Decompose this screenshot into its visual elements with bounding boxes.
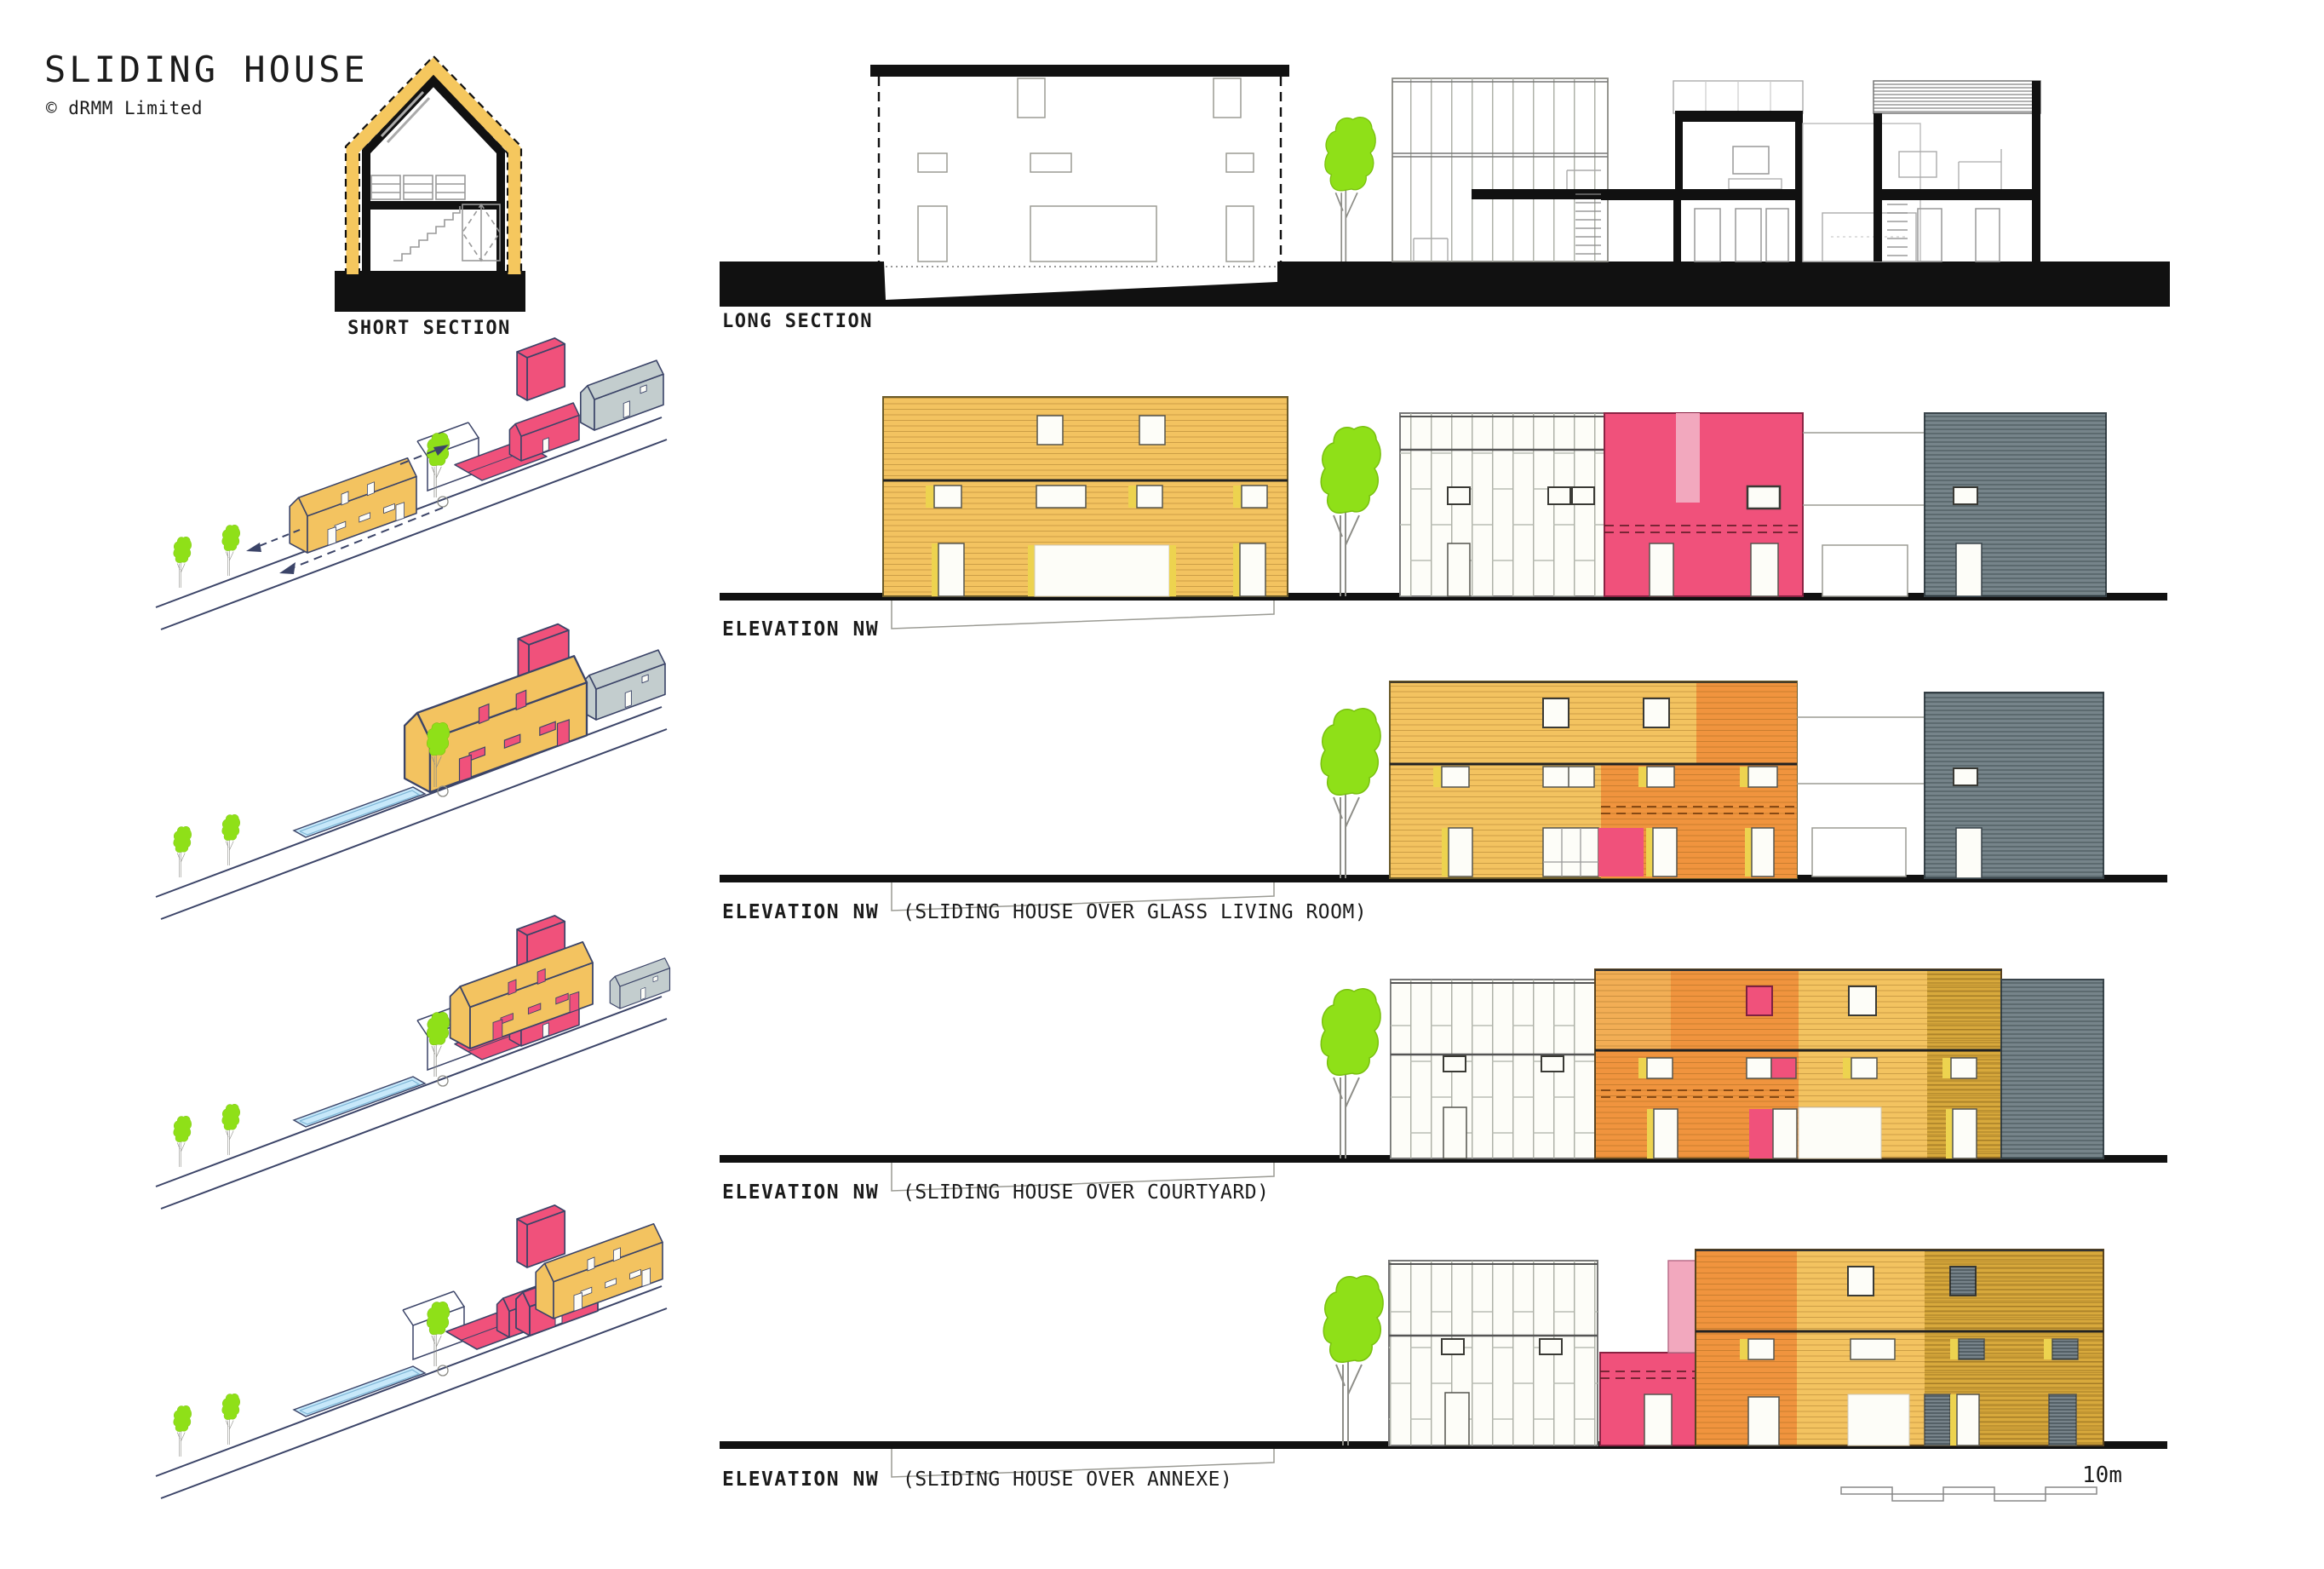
window [934,486,961,508]
window [1954,768,1977,785]
main-house-elevation [1604,413,1803,596]
door [1644,1394,1672,1445]
glass-living-room-elevation [1389,1261,1598,1445]
courtyard-walls [1797,717,1925,784]
door [1956,543,1982,596]
envelope-ghost-outline [879,77,1281,261]
window [1848,1267,1874,1296]
main-house-section [1601,81,1920,261]
elevation-4-label: ELEVATION NW [722,1468,879,1491]
annexe-section [1874,81,2040,261]
window [1548,487,1570,504]
window [1442,1339,1464,1354]
tree-icon [1321,989,1380,1158]
sliding-house-over-glass-room [1390,681,1797,878]
elevation-row-4: ELEVATION NW (SLIDING HOUSE OVER ANNEXE)… [720,1250,2167,1501]
door [1449,828,1472,876]
window [1036,486,1086,508]
sliding-house-over-courtyard [1595,969,2001,1158]
window [1747,486,1780,509]
tree-icon [1325,118,1375,261]
axon-view-1 [156,338,667,629]
window [1954,487,1977,504]
glass-living-room-elevation [1391,980,1595,1158]
axon-view-4 [156,1205,667,1498]
door [1654,1109,1678,1158]
window [1647,1058,1673,1078]
door [1653,828,1677,876]
pink-window [1747,986,1772,1015]
garage-opening [1035,545,1169,596]
window [1137,486,1162,508]
door [1953,1109,1977,1158]
window [1139,416,1165,445]
window [1572,487,1594,504]
elevation-row-1: ELEVATION NW [720,397,2167,641]
copyright-text: © dRMM Limited [46,98,203,118]
drawing-sheet: SLIDING HOUSE © dRMM Limited SHORT SECTI… [0,0,2324,1569]
elevation-3-label: ELEVATION NW [722,1181,879,1204]
window [1747,1058,1771,1078]
glass-living-room-elevation [1400,413,1604,596]
door [1240,543,1265,596]
elevation-row-3: ELEVATION NW (SLIDING HOUSE OVER COURTYA… [720,969,2167,1204]
title-block: SLIDING HOUSE © dRMM Limited [44,49,369,118]
pink-window [1771,1058,1796,1078]
window [1543,698,1569,727]
window [1748,1339,1774,1359]
window [1540,1339,1562,1354]
elevation-3-sublabel: (SLIDING HOUSE OVER COURTYARD) [903,1181,1269,1204]
sliding-house-over-annexe [1696,1250,2103,1445]
elevation-2-sublabel: (SLIDING HOUSE OVER GLASS LIVING ROOM) [903,901,1367,923]
ghost-openings [918,78,1254,261]
page-title: SLIDING HOUSE [44,49,369,90]
door [1751,543,1778,596]
annexe-elevation [1925,693,2103,878]
annexe-elevation [2001,980,2103,1158]
annexe-elevation [1925,413,2106,596]
below-ground-outline [892,601,1274,629]
tree-icon [1321,709,1380,878]
window [1448,487,1470,504]
scale-label: 10m [2082,1463,2122,1488]
axon-view-2 [156,624,667,919]
window [1849,986,1876,1015]
garage-opening [1848,1394,1909,1445]
pink-tower [1668,1261,1696,1353]
window [1644,698,1669,727]
elevation-1-label: ELEVATION NW [722,618,879,641]
tree-icon [1321,427,1380,596]
window [1242,486,1267,508]
garage-outline [1822,545,1908,596]
pink-door-panel [1749,1109,1773,1158]
door [1773,1109,1797,1158]
window [1037,416,1063,445]
courtyard-walls [1803,433,1925,596]
window [1951,1058,1977,1078]
door [938,543,964,596]
tree-icon [1323,1276,1383,1445]
garage-opening [1799,1107,1881,1158]
door [1752,828,1774,876]
window [1541,1056,1564,1072]
roof-bar [870,65,1289,77]
short-section-drawing: SHORT SECTION [335,56,525,339]
door [1443,1107,1466,1158]
elevation-4-sublabel: (SLIDING HOUSE OVER ANNEXE) [903,1468,1232,1491]
door [1956,828,1982,878]
window [1748,767,1777,787]
door [1650,543,1673,596]
pink-door-panel [1598,828,1644,876]
window [1442,767,1469,787]
door [1445,1393,1469,1445]
window [1851,1058,1877,1078]
ground-mass [335,271,525,312]
sliding-house-sheet: SLIDING HOUSE © dRMM Limited SHORT SECTI… [0,0,2324,1569]
long-section-label: LONG SECTION [722,311,873,332]
elevation-row-2: ELEVATION NW (SLIDING HOUSE OVER GLASS L… [720,681,2167,923]
glazed-opening [1543,828,1598,876]
short-section-label: SHORT SECTION [347,318,511,339]
door [1748,1397,1779,1445]
long-section-drawing: LONG SECTION [720,65,2170,332]
door [1957,1394,1979,1445]
garage-outline [1812,828,1906,876]
glass-living-room-section [1392,78,1608,261]
window [1851,1339,1895,1359]
scale-bar: 10m [1841,1463,2122,1501]
window [1443,1056,1466,1072]
elevation-2-label: ELEVATION NW [722,901,879,923]
window [1647,767,1674,787]
axon-view-3 [156,916,670,1209]
sliding-house-elevation [883,397,1288,596]
door [1448,543,1470,596]
